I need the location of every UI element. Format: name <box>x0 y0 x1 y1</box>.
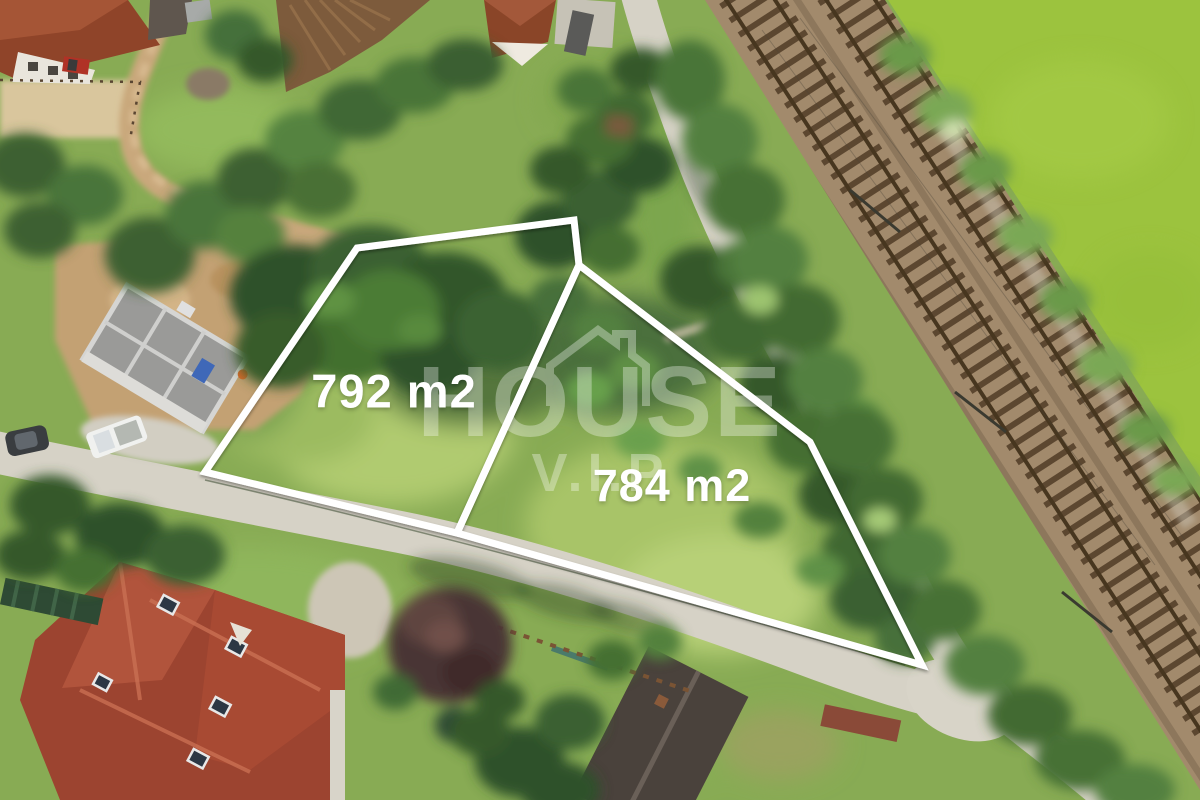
aerial-scene <box>0 0 1200 800</box>
plot1-area-label: 792 m2 <box>311 364 476 419</box>
plot2-area-label: 784 m2 <box>593 460 752 512</box>
aerial-photo-land-plots: 792 m2 784 m2 HOUSE V.I.P <box>0 0 1200 800</box>
grey-shed <box>185 0 213 23</box>
